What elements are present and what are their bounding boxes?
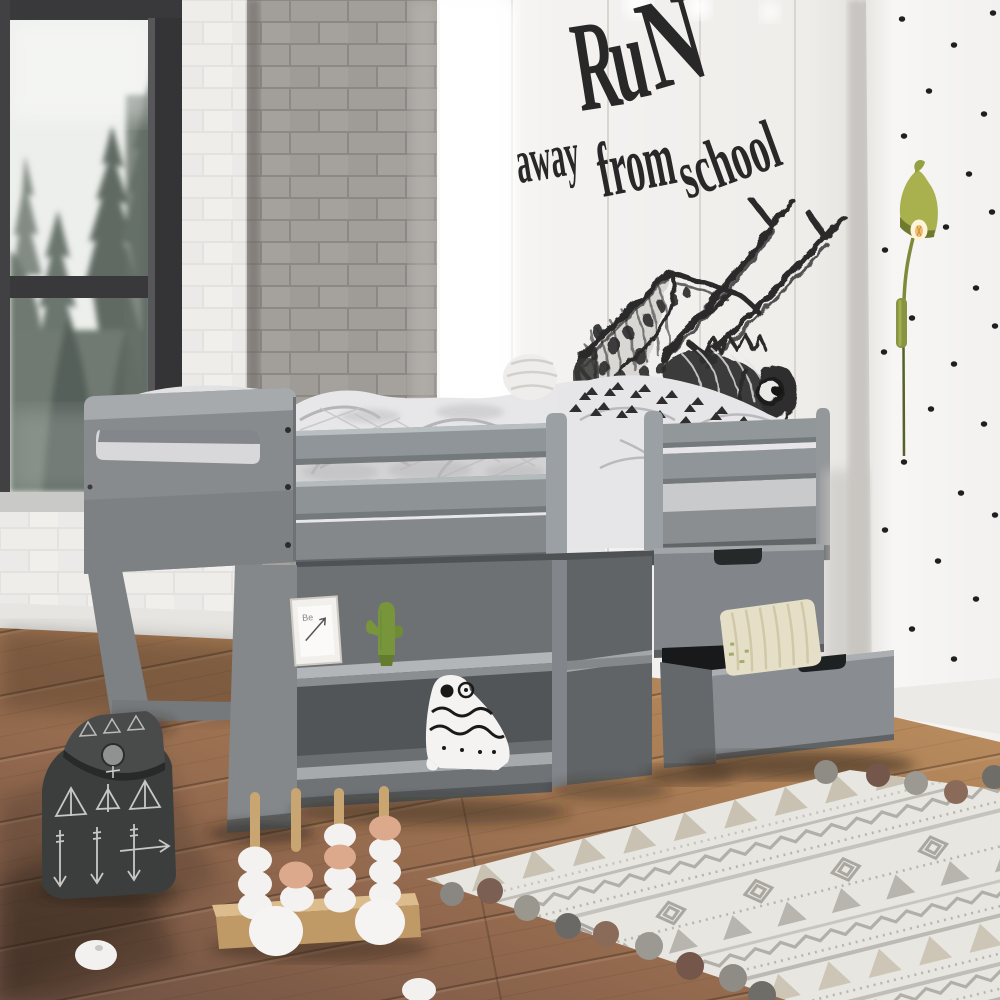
svg-text:from: from bbox=[590, 116, 682, 215]
svg-text:away: away bbox=[511, 120, 584, 197]
svg-text:Be: Be bbox=[302, 612, 314, 623]
